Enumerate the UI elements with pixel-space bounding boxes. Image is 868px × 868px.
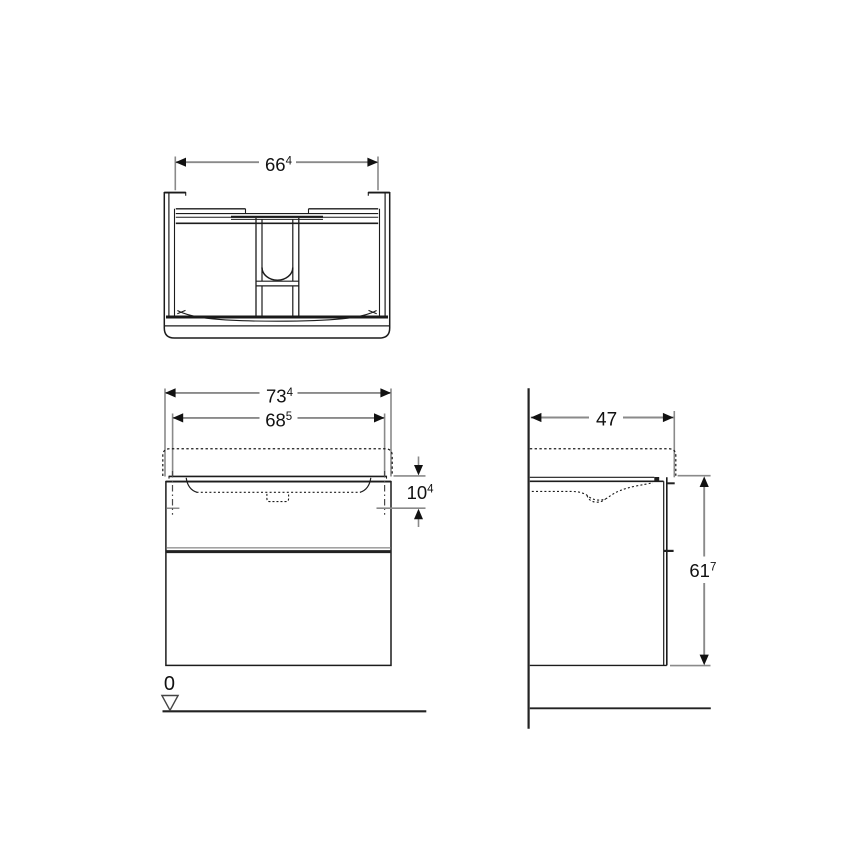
svg-text:47: 47 xyxy=(596,409,617,430)
svg-text:0: 0 xyxy=(164,673,175,695)
